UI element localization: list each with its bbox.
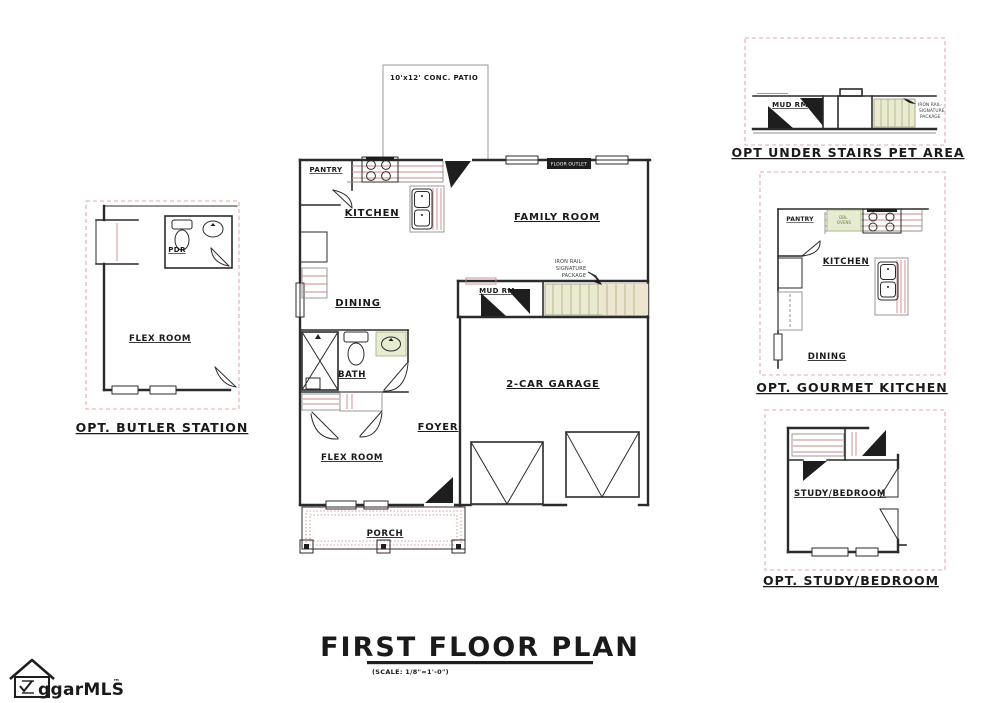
inset-window bbox=[112, 386, 138, 394]
patio-door-swing-icon bbox=[445, 161, 471, 188]
room-label-study-bedroom: STUDY/BEDROOM bbox=[794, 489, 886, 499]
room-label-dining-inset: DINING bbox=[808, 352, 847, 362]
room-label-dining: DINING bbox=[335, 298, 381, 309]
porch-column bbox=[377, 540, 390, 553]
room-label-kitchen-inset: KITCHEN bbox=[823, 257, 869, 267]
room-label-flex-room: FLEX ROOM bbox=[321, 453, 383, 463]
room-label-garage: 2-CAR GARAGE bbox=[506, 379, 599, 390]
patio-outline: 10'x12' CONC. PATIO bbox=[383, 65, 488, 160]
kitchen-counter bbox=[347, 161, 443, 182]
plan-scale: (SCALE: 1/8"=1'-0") bbox=[372, 668, 449, 676]
study-closet-door-swing-icon bbox=[862, 430, 886, 456]
gourmet-pantry-door-arc bbox=[802, 241, 820, 256]
french-door-icon bbox=[880, 509, 898, 540]
toilet-icon bbox=[344, 332, 368, 365]
gourmet-fridge-cabinet bbox=[778, 258, 802, 330]
gourmet-pantry: PANTRY bbox=[778, 212, 825, 256]
bath-sink-icon bbox=[376, 332, 406, 356]
garage: 2-CAR GARAGE bbox=[460, 317, 639, 505]
inset-border bbox=[86, 201, 239, 409]
inset-window bbox=[812, 548, 848, 556]
inset-title-study-bedroom: OPT. STUDY/BEDROOM bbox=[763, 573, 939, 588]
inset-pet-area: MUD RM IRON RAIL- SIGNATURE PACKAGE OPT … bbox=[731, 38, 964, 160]
logo-text: ggarMLS bbox=[38, 680, 124, 700]
inset-butler-station: PDR FLEX ROOM OPT. BUTLER STATION bbox=[76, 201, 249, 435]
patio-label: 10'x12' CONC. PATIO bbox=[390, 74, 478, 82]
study-door-swing-icon bbox=[803, 461, 827, 481]
floor-outlet-label: FLOOR OUTLET bbox=[551, 162, 587, 168]
pdr-door-arc bbox=[211, 248, 229, 266]
mudroom-stairs: MUD RM bbox=[458, 278, 648, 317]
plan-title-block: FIRST FLOOR PLAN (SCALE: 1/8"=1'-0") bbox=[320, 632, 640, 676]
bath-room: BATH bbox=[300, 330, 408, 392]
pet-door-swing-icon bbox=[768, 106, 793, 128]
kitchen-island bbox=[410, 186, 444, 232]
inset-window bbox=[150, 386, 176, 394]
pdr-room: PDR bbox=[165, 216, 232, 268]
logo-trademark: ™ bbox=[113, 678, 120, 686]
title-underline bbox=[367, 661, 593, 664]
hall-closet bbox=[302, 392, 382, 439]
room-label-foyer: FOYER bbox=[418, 422, 459, 433]
inset-title-butler-station: OPT. BUTLER STATION bbox=[76, 420, 249, 435]
room-label-kitchen: KITCHEN bbox=[345, 208, 400, 219]
main-plan: 10'x12' CONC. PATIO FLOOR OUTLET bbox=[296, 65, 650, 553]
floor-outlet-bar: FLOOR OUTLET bbox=[547, 158, 591, 169]
double-ovens-icon: DBL OVENS bbox=[827, 210, 861, 231]
pet-nook bbox=[840, 89, 862, 96]
room-label-family-room: FAMILY ROOM bbox=[514, 212, 600, 223]
closet-door-arc2 bbox=[360, 411, 382, 437]
inset-window bbox=[856, 548, 878, 556]
room-label-mud-rm: MUD RM bbox=[479, 287, 515, 295]
svg-text:IRON RAIL- SIGNATURE: IRON RAIL- SIGNATURE PACKAGE bbox=[918, 102, 946, 120]
inset-entry-arc bbox=[215, 367, 236, 387]
room-label-bath: BATH bbox=[338, 370, 366, 380]
floor-plan-page: 10'x12' CONC. PATIO FLOOR OUTLET bbox=[0, 0, 1004, 703]
plan-title: FIRST FLOOR PLAN bbox=[320, 632, 640, 663]
gourmet-island bbox=[875, 258, 908, 315]
svg-text:IRON RAIL- SIGNATURE: IRON RAIL- SIGNATURE PACKAGE bbox=[555, 259, 588, 279]
garage-door-panel-left bbox=[471, 442, 543, 504]
inset-title-gourmet-kitchen: OPT. GOURMET KITCHEN bbox=[756, 380, 948, 395]
garage-door-panel-right bbox=[566, 432, 639, 497]
dining-window bbox=[296, 283, 304, 317]
room-label-pantry: PANTRY bbox=[309, 166, 343, 174]
room-label-mud-rm-inset: MUD RM bbox=[772, 101, 808, 109]
floor-plan-canvas: 10'x12' CONC. PATIO FLOOR OUTLET bbox=[0, 0, 1004, 703]
gourmet-stove-icon bbox=[863, 209, 901, 233]
room-label-pdr: PDR bbox=[168, 246, 186, 254]
room-label-pantry-inset: PANTRY bbox=[786, 216, 814, 223]
closet-door-arc bbox=[311, 412, 338, 439]
room-label-flex-room-inset: FLEX ROOM bbox=[129, 334, 191, 344]
kitchen-sink-icon bbox=[412, 189, 432, 229]
mls-logo: ggarMLS ™ bbox=[10, 660, 124, 700]
inset-border bbox=[760, 172, 945, 375]
gourmet-sink-icon bbox=[878, 262, 898, 300]
inset-study-bedroom: STUDY/BEDROOM OPT. STUDY/BEDROOM bbox=[763, 410, 945, 588]
mudroom-door-swing-icon bbox=[481, 293, 506, 316]
shower-icon bbox=[302, 332, 338, 390]
pantry-room: PANTRY bbox=[300, 160, 352, 208]
porch: PORCH bbox=[300, 507, 465, 553]
pdr-sink-icon bbox=[203, 221, 223, 237]
porch-column bbox=[452, 540, 465, 553]
butler-nook bbox=[96, 220, 138, 264]
study-closet bbox=[792, 428, 886, 460]
inset-title-pet-area: OPT UNDER STAIRS PET AREA bbox=[731, 145, 964, 160]
front-door-swing-icon bbox=[425, 477, 453, 503]
inset-gourmet-kitchen: DBL OVENS PANTRY KITCHEN bbox=[756, 172, 948, 395]
bath-door-arc bbox=[384, 362, 408, 391]
room-label-porch: PORCH bbox=[367, 529, 404, 539]
inset-window bbox=[774, 334, 782, 360]
